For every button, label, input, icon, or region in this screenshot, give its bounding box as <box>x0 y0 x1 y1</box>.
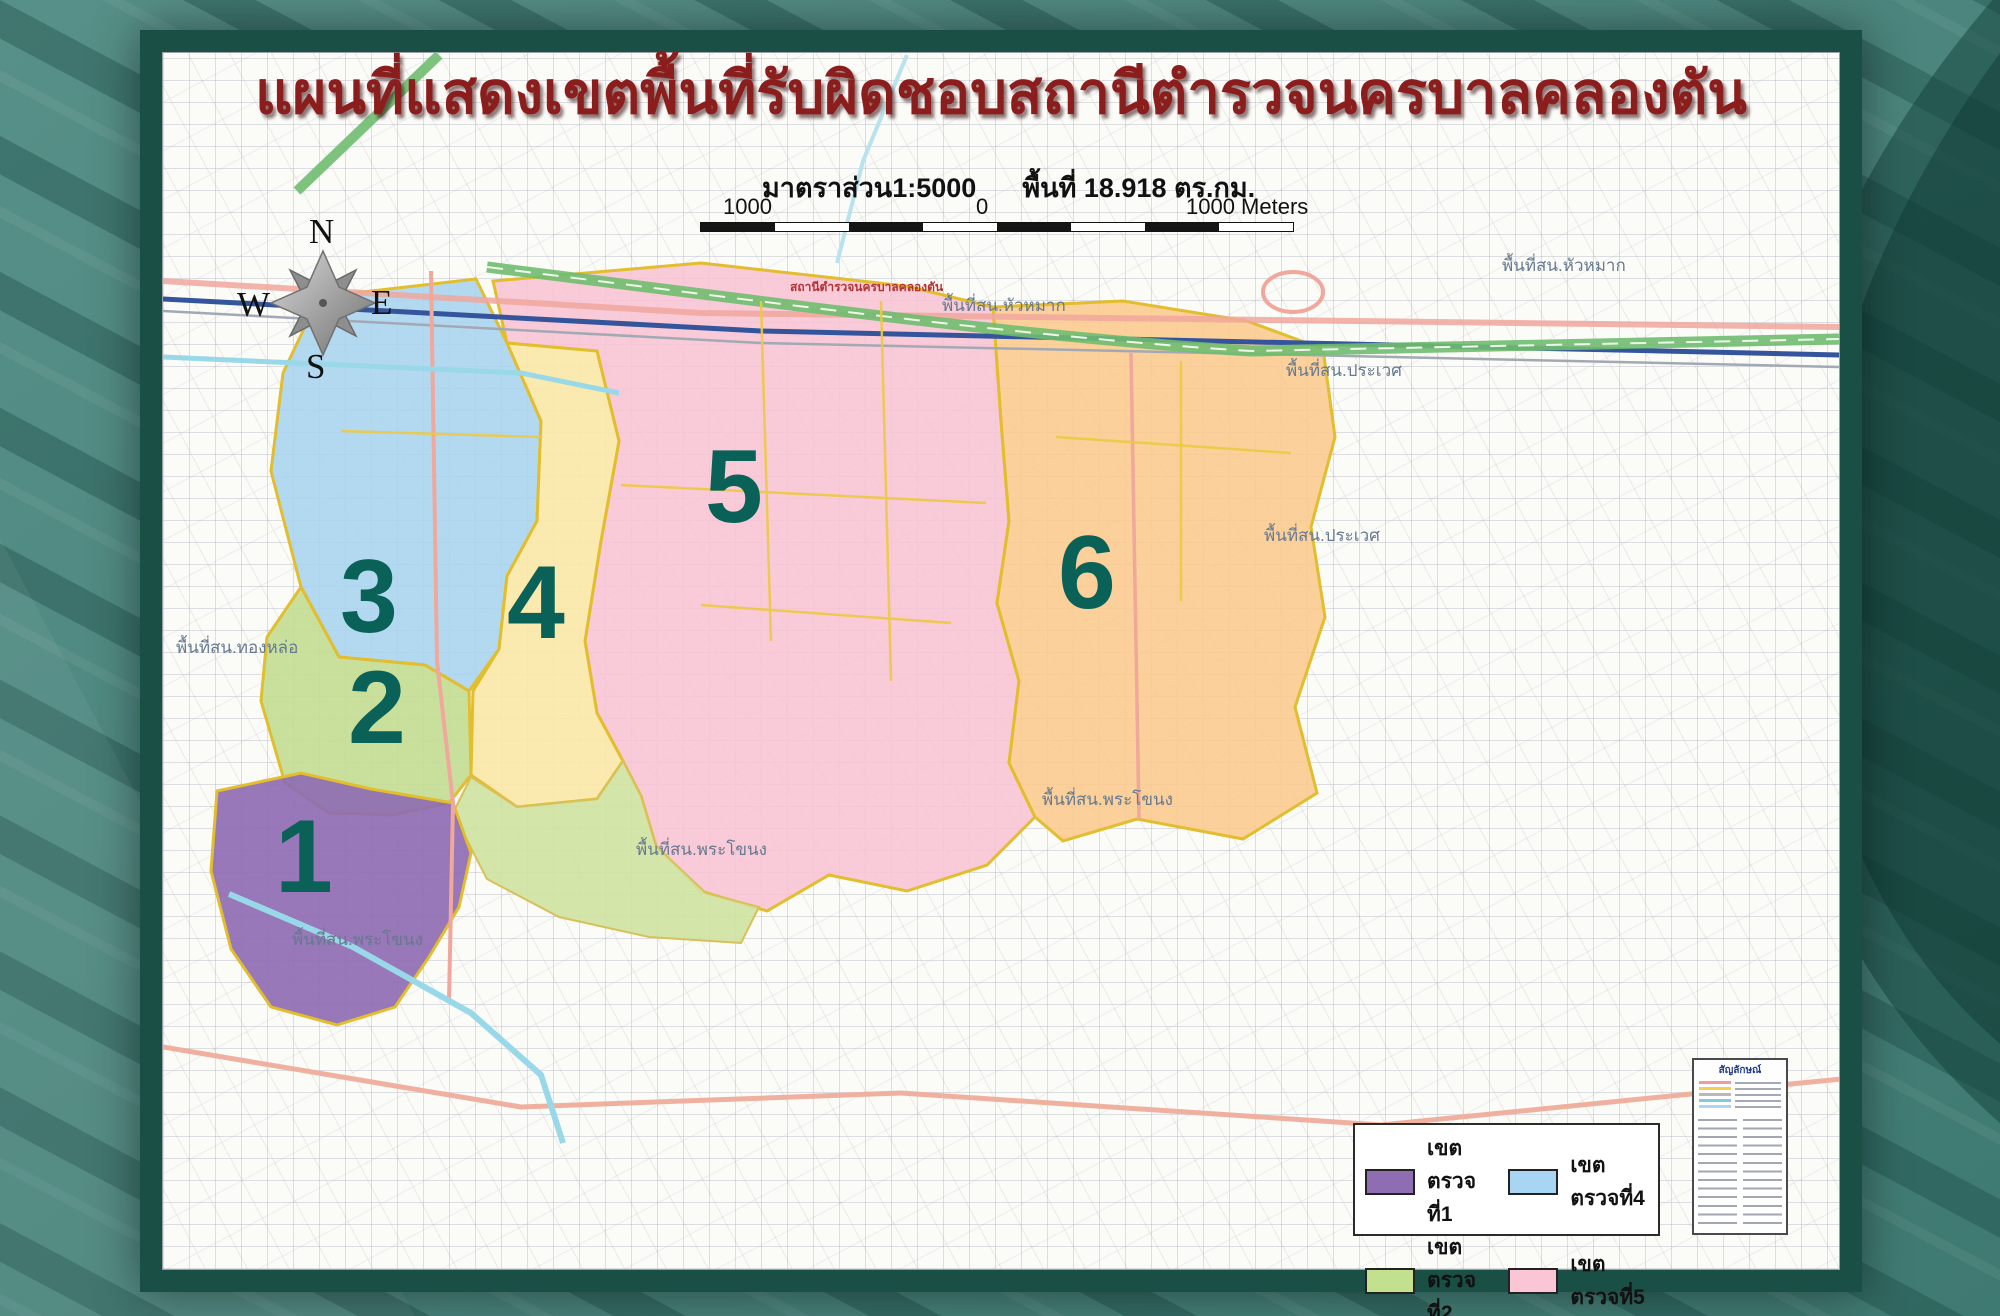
symbol-column <box>1698 1112 1737 1224</box>
legend-item-4: เขตตรวจที่4 <box>1508 1149 1648 1215</box>
zone-number-5: 5 <box>705 435 763 539</box>
legend-swatch-4 <box>1508 1169 1558 1195</box>
zone-number-1: 1 <box>275 805 333 909</box>
area-label-prawet-1: พื้นที่สน.ประเวศ <box>1286 357 1402 384</box>
compass-w-label: W <box>237 285 270 325</box>
zone-number-3: 3 <box>340 545 398 649</box>
scale-label-right: 1000 Meters <box>1186 194 1308 220</box>
map-canvas <box>162 52 1840 1270</box>
zone-1-region <box>211 773 471 1025</box>
legend-item-5: เขตตรวจที่5 <box>1508 1248 1648 1314</box>
legend-label-5: เขตตรวจที่5 <box>1570 1248 1648 1314</box>
interchange-loop <box>1263 272 1323 312</box>
area-label-phrakhanong-3: พื้นที่สน.พระโขนง <box>292 926 423 953</box>
symbol-row <box>1699 1087 1781 1090</box>
legend-item-2: เขตตรวจที่2 <box>1365 1231 1494 1316</box>
scale-label-left: 1000 <box>723 194 772 220</box>
compass-n-label: N <box>309 212 334 252</box>
legend-swatch-2 <box>1365 1268 1415 1294</box>
road-bottom <box>163 1047 1840 1125</box>
area-label-prawet-2: พื้นที่สน.ประเวศ <box>1264 522 1380 549</box>
symbol-row <box>1699 1105 1781 1108</box>
zone-number-2: 2 <box>348 656 406 760</box>
area-label-phrakhanong-1: พื้นที่สน.พระโขนง <box>636 836 767 863</box>
station-label: สถานีตำรวจนครบาลคลองตัน <box>790 278 943 297</box>
legend-label-4: เขตตรวจที่4 <box>1570 1149 1648 1215</box>
symbols-legend-title: สัญลักษณ์ <box>1698 1063 1782 1078</box>
zone-number-6: 6 <box>1058 521 1116 625</box>
area-label-huamak-1: พื้นที่สน.หัวหมาก <box>1502 252 1626 279</box>
legend-swatch-1 <box>1365 1169 1415 1195</box>
scale-text: มาตราส่วน1:5000 <box>762 166 976 209</box>
road-gray-line-icon <box>1699 1093 1731 1096</box>
legend-label-1: เขตตรวจที่1 <box>1427 1132 1494 1231</box>
road-red-line-icon <box>1699 1081 1731 1084</box>
symbol-row <box>1699 1081 1781 1084</box>
map-svg <box>163 53 1840 1270</box>
zone-6-region <box>993 301 1335 841</box>
area-label-phrakhanong-2: พื้นที่สน.พระโขนง <box>1042 786 1173 813</box>
page-title: แผนที่แสดงเขตพื้นที่รับผิดชอบสถานีตำรวจน… <box>170 46 1832 139</box>
symbols-legend: สัญลักษณ์ <box>1692 1058 1788 1235</box>
map-subtitle: มาตราส่วน1:5000 พื้นที่ 18.918 ตร.กม. <box>762 166 1255 209</box>
symbol-row <box>1699 1093 1781 1096</box>
zone-legend: เขตตรวจที่1 เขตตรวจที่2 เขตตรวจที่3 เขตต… <box>1353 1123 1660 1236</box>
symbol-row <box>1699 1099 1781 1102</box>
symbol-column <box>1743 1112 1782 1224</box>
scale-label-zero: 0 <box>976 194 988 220</box>
screenshot-stage: N W E S แผนที่แสดงเขตพื้นที่รับผิดชอบสถา… <box>0 0 2000 1316</box>
scale-bar <box>700 222 1294 232</box>
area-label-huamak-2: พื้นที่สน.หัวหมาก <box>942 292 1066 319</box>
water-area-icon <box>1699 1105 1731 1108</box>
legend-label-2: เขตตรวจที่2 <box>1427 1231 1494 1316</box>
road-yellow-line-icon <box>1699 1087 1731 1090</box>
canal-line-icon <box>1699 1099 1731 1102</box>
symbol-icon-grid <box>1698 1112 1782 1224</box>
legend-item-1: เขตตรวจที่1 <box>1365 1132 1494 1231</box>
area-label-thonglor: พื้นที่สน.ทองหล่อ <box>176 634 298 661</box>
compass-s-label: S <box>306 347 325 387</box>
compass-e-label: E <box>371 283 392 323</box>
legend-swatch-5 <box>1508 1268 1558 1294</box>
zone-number-4: 4 <box>507 551 565 655</box>
